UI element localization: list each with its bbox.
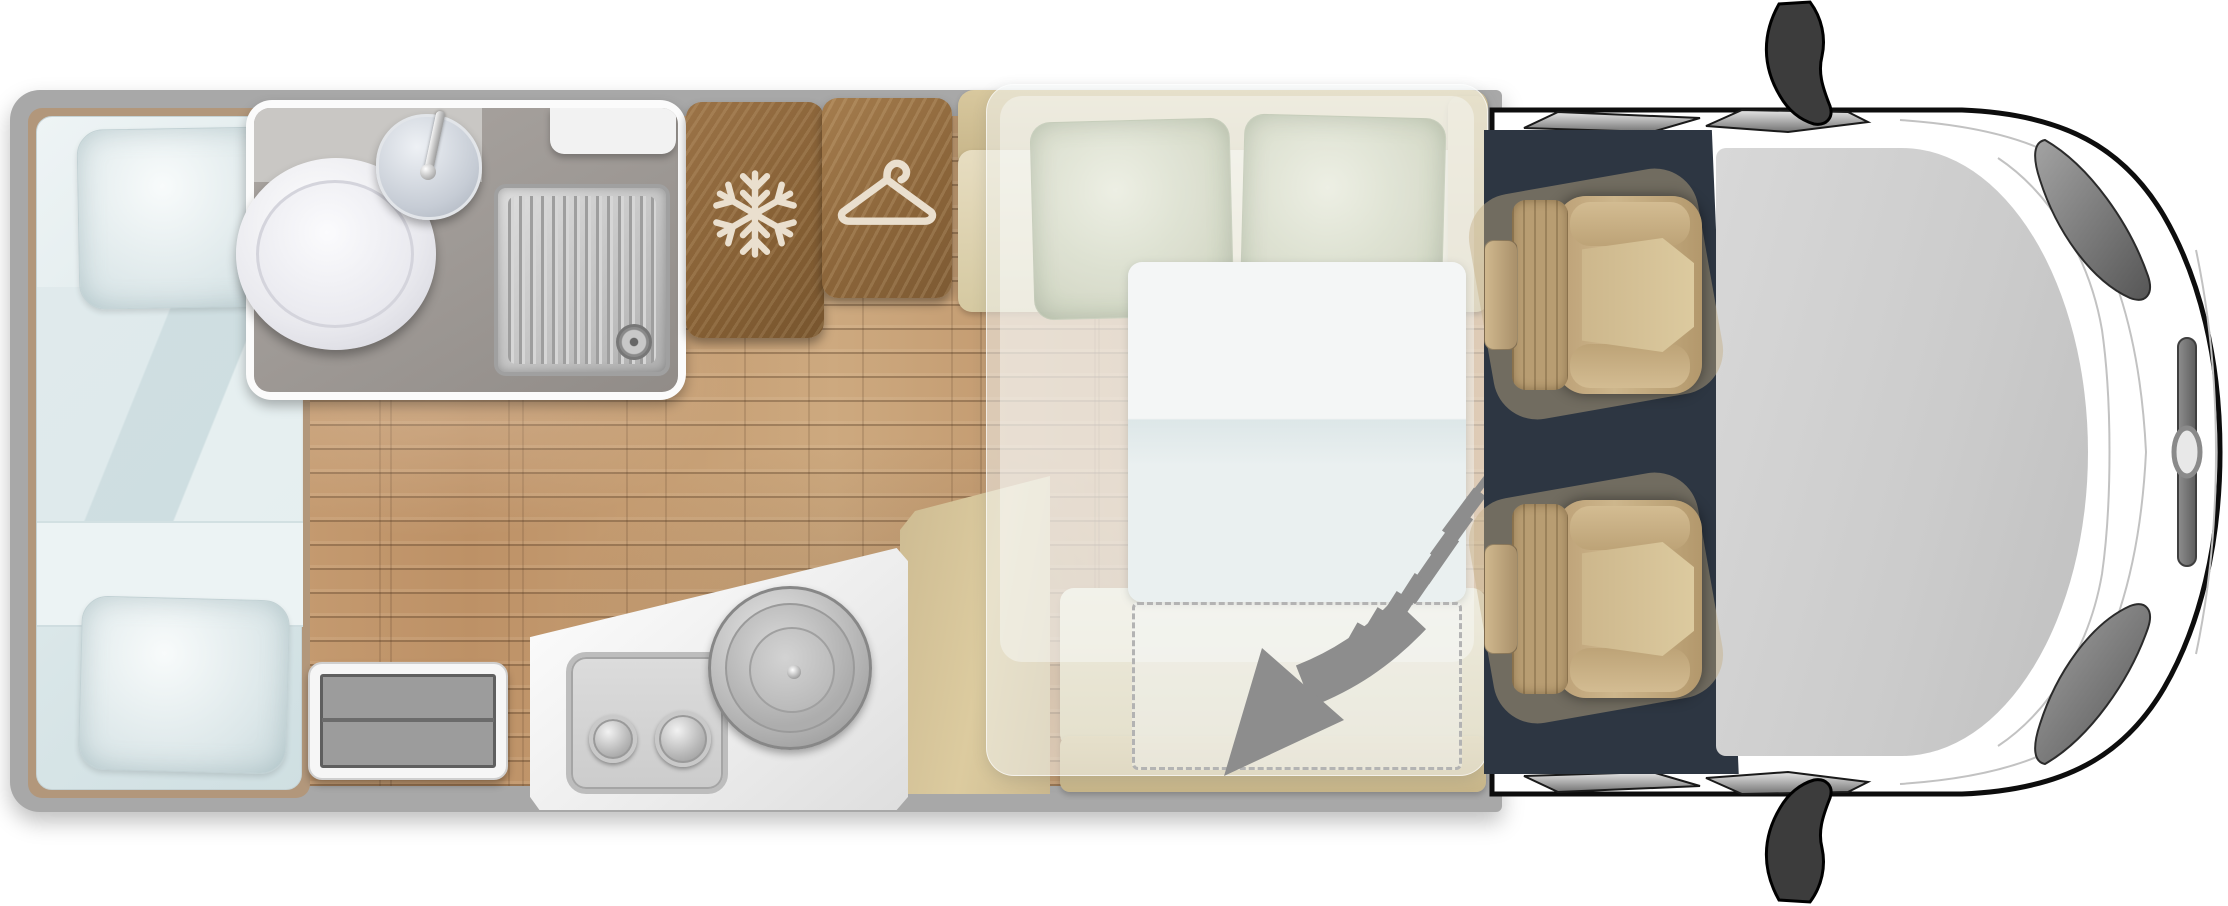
passenger-seat-bolster-top (1570, 506, 1690, 550)
front-emblem (2174, 428, 2200, 476)
driver-seat-headrest (1484, 240, 1518, 350)
passenger-seat-backrest (1512, 504, 1568, 694)
passenger-seat (1486, 496, 1702, 702)
passenger-seat-headrest (1484, 544, 1518, 654)
driver-seat-backrest (1512, 200, 1568, 390)
passenger-seat-cushion (1582, 542, 1694, 656)
mirror-top (1766, 2, 1831, 124)
driver-seat-bolster-bottom (1570, 344, 1690, 388)
windshield (1716, 148, 2088, 756)
driver-seat-bolster-top (1570, 202, 1690, 246)
driver-seat (1486, 192, 1702, 398)
motorhome-floorplan (0, 0, 2228, 906)
mirror-bottom (1766, 780, 1831, 902)
passenger-seat-bolster-bottom (1570, 648, 1690, 692)
driver-seat-cushion (1582, 238, 1694, 352)
